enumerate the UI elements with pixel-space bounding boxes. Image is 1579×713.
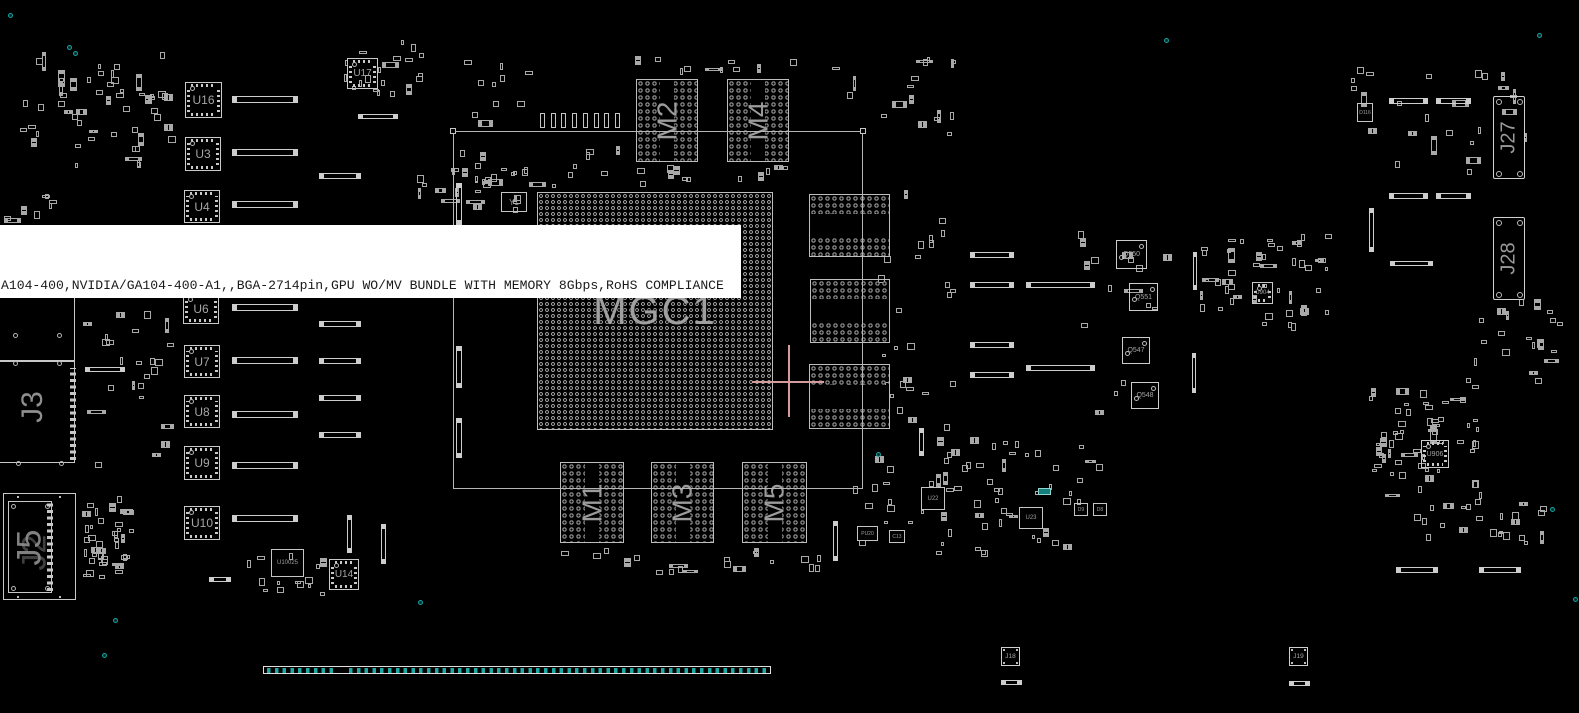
small-part xyxy=(1540,531,1544,544)
small-part xyxy=(1450,398,1465,401)
small-part xyxy=(624,558,631,567)
small-part xyxy=(987,479,993,485)
small-part xyxy=(137,162,141,168)
gpu-module-outline xyxy=(453,131,863,489)
small-part xyxy=(165,318,169,333)
small-part xyxy=(684,66,691,72)
small-part xyxy=(1501,72,1505,81)
small-part xyxy=(1473,440,1476,447)
small-part xyxy=(951,449,960,456)
small-part xyxy=(916,60,933,63)
pin-hole xyxy=(57,333,62,338)
ic-u904[interactable]: U904 xyxy=(1252,282,1273,304)
small-part xyxy=(683,570,698,573)
small-part xyxy=(950,381,956,387)
small-part xyxy=(911,76,919,81)
small-part xyxy=(1425,468,1429,472)
pin1-mark xyxy=(1426,444,1431,449)
small-part xyxy=(1385,494,1400,497)
small-part xyxy=(405,58,413,62)
small-part xyxy=(1467,169,1472,175)
small-part xyxy=(1228,270,1236,276)
chip-d9[interactable]: D9 xyxy=(1074,503,1088,516)
small-part xyxy=(492,82,496,87)
small-part xyxy=(906,387,914,391)
pcb-board-view: Y1U10025PU20C13U22U23D9D8D116U16U3U4U6U7… xyxy=(0,0,1579,713)
ref-label: U6 xyxy=(193,302,208,316)
small-part xyxy=(884,521,888,524)
small-part xyxy=(1351,78,1355,83)
small-part xyxy=(1301,234,1305,241)
small-part xyxy=(58,101,65,107)
ic-u9[interactable]: U9 xyxy=(184,446,220,480)
ref-label: U7 xyxy=(194,355,209,369)
small-part xyxy=(1414,514,1421,521)
small-part xyxy=(1440,523,1445,528)
small-part xyxy=(1003,441,1008,445)
pin-hole xyxy=(13,361,18,366)
small-part xyxy=(1260,264,1277,268)
ref-label: U9 xyxy=(194,456,209,470)
small-part xyxy=(887,505,895,512)
small-part xyxy=(84,549,87,557)
small-part xyxy=(95,508,98,516)
capacitor[interactable] xyxy=(604,113,609,128)
small-part xyxy=(31,138,37,147)
small-part xyxy=(1418,486,1422,493)
resistor-pack[interactable] xyxy=(232,357,298,364)
resistor-pack[interactable] xyxy=(232,411,298,418)
resistor-pack[interactable] xyxy=(319,358,361,364)
small-part xyxy=(1297,240,1302,247)
resistor-pack[interactable] xyxy=(1479,567,1521,573)
resistor-pack[interactable] xyxy=(319,173,361,179)
small-part xyxy=(1466,504,1471,510)
small-part xyxy=(1025,453,1029,457)
ic-u4[interactable]: U4 xyxy=(184,190,220,223)
small-part xyxy=(1400,430,1404,434)
small-part xyxy=(139,396,144,399)
small-part xyxy=(96,90,103,95)
small-part xyxy=(49,203,52,209)
small-part xyxy=(378,67,381,73)
ref-label: J28 xyxy=(1498,242,1521,274)
capacitor[interactable] xyxy=(561,113,566,128)
ref-label: U10025 xyxy=(277,560,298,566)
small-part xyxy=(72,114,78,120)
small-part xyxy=(1401,453,1418,457)
ic-u10[interactable]: U10 xyxy=(184,506,220,540)
outline-corner-mark xyxy=(860,128,866,134)
resistor-pack[interactable] xyxy=(1390,261,1433,266)
small-part xyxy=(943,472,948,485)
mosfet-q551[interactable]: Q551 xyxy=(1129,283,1158,311)
ref-label: Q550 xyxy=(1123,251,1140,258)
small-part xyxy=(974,500,981,508)
resistor-pack[interactable] xyxy=(970,252,1014,258)
small-part xyxy=(809,564,814,572)
resistor-pack[interactable] xyxy=(833,521,838,561)
small-part xyxy=(121,534,125,543)
chip-u10025[interactable]: U10025 xyxy=(271,549,304,577)
small-part xyxy=(1015,441,1019,448)
connector-j28[interactable]: J28 xyxy=(1493,217,1525,300)
resistor-pack[interactable] xyxy=(232,96,298,103)
small-part xyxy=(1535,378,1542,384)
small-part xyxy=(1476,516,1483,521)
small-part xyxy=(38,104,44,111)
small-part xyxy=(941,512,947,521)
small-part xyxy=(1478,127,1481,134)
small-part xyxy=(1108,285,1112,292)
small-part xyxy=(20,128,27,132)
small-part xyxy=(1228,239,1236,242)
small-part xyxy=(382,62,399,68)
small-part xyxy=(1408,131,1417,136)
small-part xyxy=(1426,534,1431,541)
capacitor[interactable] xyxy=(594,113,599,128)
ref-label: PU20 xyxy=(861,531,874,537)
small-part xyxy=(634,555,640,561)
ic-u14[interactable]: U14 xyxy=(329,559,359,590)
test-point xyxy=(1537,33,1542,38)
small-part xyxy=(85,525,89,533)
small-part xyxy=(1080,238,1086,247)
small-part xyxy=(883,482,890,485)
small-part xyxy=(1526,337,1532,340)
small-part xyxy=(117,496,122,503)
ic-u3[interactable]: U3 xyxy=(185,137,221,171)
small-part xyxy=(115,522,123,527)
capacitor[interactable] xyxy=(540,113,545,128)
small-part xyxy=(167,343,174,347)
small-part xyxy=(939,218,946,224)
ref-label: D9 xyxy=(1078,507,1084,513)
small-part xyxy=(1500,513,1503,520)
small-part xyxy=(1406,409,1411,416)
small-part xyxy=(75,163,78,168)
small-part xyxy=(92,553,97,557)
resistor-pack[interactable] xyxy=(970,372,1014,378)
small-part xyxy=(1479,492,1482,499)
resistor-pack[interactable] xyxy=(232,304,298,311)
small-part xyxy=(75,144,81,148)
small-part xyxy=(934,117,940,121)
small-part xyxy=(954,486,962,491)
small-part xyxy=(150,94,154,98)
pin1-mark xyxy=(352,62,357,67)
resistor-pack[interactable] xyxy=(319,395,361,401)
small-part xyxy=(890,394,894,398)
small-part xyxy=(1474,358,1477,366)
ref-label: U906 xyxy=(1427,451,1444,458)
small-part xyxy=(1472,385,1479,389)
small-part xyxy=(950,112,954,120)
small-part xyxy=(1325,234,1332,239)
resistor-pack[interactable] xyxy=(209,577,231,582)
resistor-pack[interactable] xyxy=(232,515,298,522)
small-part xyxy=(517,101,525,107)
small-part xyxy=(123,106,130,112)
resistor-pack[interactable] xyxy=(919,428,924,456)
small-part xyxy=(754,548,759,557)
small-part xyxy=(1498,86,1509,90)
pin1-mark xyxy=(190,86,195,91)
chip-c13[interactable]: C13 xyxy=(889,530,905,543)
capacitor[interactable] xyxy=(615,113,620,128)
test-point xyxy=(876,452,881,457)
small-part xyxy=(359,51,367,54)
small-part xyxy=(669,569,674,575)
small-part xyxy=(161,424,174,429)
small-part xyxy=(1256,252,1262,261)
resistor-pack[interactable] xyxy=(347,515,352,553)
corner-dot xyxy=(1304,649,1306,651)
resistor-pack[interactable] xyxy=(319,321,361,327)
small-part xyxy=(1482,73,1488,80)
small-part xyxy=(1550,318,1556,323)
resistor-pack[interactable] xyxy=(358,114,398,119)
connector-j27[interactable]: J27 xyxy=(1493,96,1525,179)
small-part xyxy=(945,282,950,288)
small-part xyxy=(1240,239,1244,244)
small-part xyxy=(23,100,28,107)
small-part xyxy=(115,542,119,549)
small-part xyxy=(975,547,981,551)
small-part xyxy=(417,175,424,183)
small-part xyxy=(1032,535,1035,539)
small-part xyxy=(84,537,90,543)
mount-hole xyxy=(1496,292,1502,298)
small-part xyxy=(1291,323,1296,331)
resistor-pack[interactable] xyxy=(232,462,298,469)
small-part xyxy=(941,542,944,546)
resistor-pack[interactable] xyxy=(319,432,361,438)
chip-u22[interactable]: U22 xyxy=(921,487,945,510)
small-part xyxy=(418,73,423,77)
ic-u7[interactable]: U7 xyxy=(184,345,220,378)
resistor-pack[interactable] xyxy=(1436,193,1471,199)
small-part xyxy=(162,93,168,100)
resistor-pack[interactable] xyxy=(1026,282,1095,288)
small-part xyxy=(4,216,11,221)
ref-label: U3 xyxy=(195,147,210,161)
small-part xyxy=(757,64,761,73)
small-part xyxy=(1426,74,1432,79)
resistor-pack[interactable] xyxy=(1396,567,1438,573)
small-part xyxy=(1557,322,1563,326)
small-part xyxy=(865,503,873,509)
corner-dot xyxy=(1016,662,1018,664)
small-part xyxy=(472,112,478,118)
mosfet-q547[interactable]: Q547 xyxy=(1122,337,1150,364)
resistor-pack[interactable] xyxy=(1436,98,1471,104)
small-part xyxy=(1547,310,1553,314)
connector-j19[interactable]: J19 xyxy=(1289,647,1308,666)
small-part xyxy=(305,577,313,584)
board-canvas[interactable]: Y1U10025PU20C13U22U23D9D8D116U16U3U4U6U7… xyxy=(0,0,1579,713)
resistor-pack[interactable] xyxy=(1193,252,1197,290)
small-part xyxy=(1230,298,1234,305)
small-part xyxy=(887,466,894,473)
test-point xyxy=(67,45,72,50)
small-part xyxy=(28,125,36,129)
small-part xyxy=(992,443,996,450)
pin1-mark xyxy=(1257,286,1262,291)
connector-j5-body[interactable]: J5J2 xyxy=(8,501,52,593)
small-part xyxy=(411,44,416,52)
small-part xyxy=(21,206,27,215)
small-part xyxy=(1001,508,1007,514)
resistor-pack[interactable] xyxy=(1289,681,1310,686)
small-part xyxy=(1427,418,1433,426)
test-point xyxy=(1573,597,1578,602)
pin1-mark xyxy=(334,563,339,568)
small-part xyxy=(1366,72,1374,76)
chip-d8[interactable]: D8 xyxy=(1093,503,1107,516)
small-part xyxy=(160,52,165,59)
resistor-pack[interactable] xyxy=(85,367,125,372)
corner-dot xyxy=(1291,649,1293,651)
small-part xyxy=(1388,449,1391,458)
capacitor[interactable] xyxy=(551,113,556,128)
small-part xyxy=(944,458,949,464)
chip-d116[interactable]: D116 xyxy=(1357,103,1373,122)
small-part xyxy=(1499,531,1503,534)
small-part xyxy=(982,523,988,530)
small-part xyxy=(89,558,95,564)
resistor-pack[interactable] xyxy=(1026,365,1095,371)
mount-hole xyxy=(1496,99,1502,105)
corner-dot xyxy=(1003,662,1005,664)
small-part xyxy=(1490,529,1497,537)
small-part xyxy=(1442,401,1449,404)
ic-u17[interactable]: U17 xyxy=(347,58,378,89)
small-part xyxy=(308,584,311,588)
small-part xyxy=(1063,498,1071,505)
small-part xyxy=(1396,388,1409,395)
capacitor[interactable] xyxy=(572,113,577,128)
small-part xyxy=(1300,308,1309,315)
small-part xyxy=(944,424,950,431)
small-part xyxy=(112,563,121,566)
small-part xyxy=(1476,427,1479,432)
small-part xyxy=(1420,390,1427,398)
small-part xyxy=(1430,505,1434,511)
small-part xyxy=(154,114,161,121)
edge-connector-pads xyxy=(349,668,766,673)
small-part xyxy=(1390,472,1394,476)
small-part xyxy=(1497,308,1506,315)
resistor-pack[interactable] xyxy=(970,282,1014,288)
pin-hole xyxy=(59,461,64,466)
ic-u16[interactable]: U16 xyxy=(185,82,222,118)
small-part xyxy=(897,407,903,414)
small-part xyxy=(259,578,265,586)
mosfet-q548[interactable]: Q548 xyxy=(1131,382,1159,409)
ref-label: J27 xyxy=(1498,121,1521,153)
ref-label: J3 xyxy=(16,391,50,423)
ref-label: U16 xyxy=(192,93,214,107)
small-part xyxy=(1009,452,1016,455)
connector-j3[interactable] xyxy=(0,293,75,361)
small-part xyxy=(1537,339,1540,348)
resistor-pack[interactable] xyxy=(970,342,1014,348)
small-part xyxy=(1277,288,1280,293)
small-part xyxy=(817,555,821,562)
edge-connector[interactable] xyxy=(263,666,771,674)
capacitor[interactable] xyxy=(583,113,588,128)
small-part xyxy=(1446,130,1453,136)
small-part xyxy=(138,133,144,146)
small-part xyxy=(655,57,661,62)
connector-j18[interactable]: J18 xyxy=(1001,647,1020,666)
resistor-pack[interactable] xyxy=(381,524,386,564)
pin1-mark xyxy=(189,349,194,354)
small-part xyxy=(139,93,145,96)
resistor-pack[interactable] xyxy=(1001,680,1022,685)
small-part xyxy=(1551,350,1557,353)
small-part xyxy=(937,437,944,446)
small-part xyxy=(111,77,119,84)
small-part xyxy=(1466,378,1471,383)
small-part xyxy=(320,592,325,596)
pin-hole xyxy=(57,361,62,366)
ic-u906[interactable]: U906 xyxy=(1421,440,1449,468)
resistor-pack[interactable] xyxy=(1192,353,1196,393)
ref-label: U17 xyxy=(353,68,371,79)
small-part xyxy=(832,67,840,70)
small-part xyxy=(1503,532,1510,540)
mount-hole xyxy=(1496,220,1502,226)
small-part xyxy=(98,553,104,560)
small-part xyxy=(247,560,251,568)
chip-u23[interactable]: U23 xyxy=(1019,507,1043,529)
small-part xyxy=(1253,263,1260,267)
resistor-pack[interactable] xyxy=(1389,98,1428,104)
small-part xyxy=(1305,265,1312,271)
ref-label: J19 xyxy=(1293,653,1303,660)
small-part xyxy=(478,80,484,86)
small-part xyxy=(1395,460,1402,465)
mosfet-q550[interactable]: Q550 xyxy=(1116,240,1147,269)
small-part xyxy=(70,78,77,91)
resistor-pack[interactable] xyxy=(232,201,298,208)
small-part xyxy=(381,80,385,86)
small-part xyxy=(733,566,746,572)
corner-dot xyxy=(1291,662,1293,664)
small-part xyxy=(295,581,301,584)
outline-corner-mark xyxy=(450,128,456,134)
ic-u8[interactable]: U8 xyxy=(184,395,220,428)
small-part xyxy=(161,441,170,448)
small-part xyxy=(720,67,723,73)
small-part xyxy=(1079,445,1084,449)
chip-pu20[interactable]: PU20 xyxy=(857,526,878,541)
resistor-pack[interactable] xyxy=(232,149,298,156)
small-part xyxy=(999,519,1002,527)
small-part xyxy=(903,377,912,383)
resistor-pack[interactable] xyxy=(1369,208,1374,252)
small-part xyxy=(1425,405,1433,410)
small-part xyxy=(406,84,412,95)
small-part xyxy=(1163,254,1172,261)
small-part xyxy=(1325,267,1328,271)
resistor-pack[interactable] xyxy=(1389,193,1428,199)
small-part xyxy=(1502,349,1510,356)
mount-hole xyxy=(1517,171,1523,177)
small-part xyxy=(1052,540,1059,546)
